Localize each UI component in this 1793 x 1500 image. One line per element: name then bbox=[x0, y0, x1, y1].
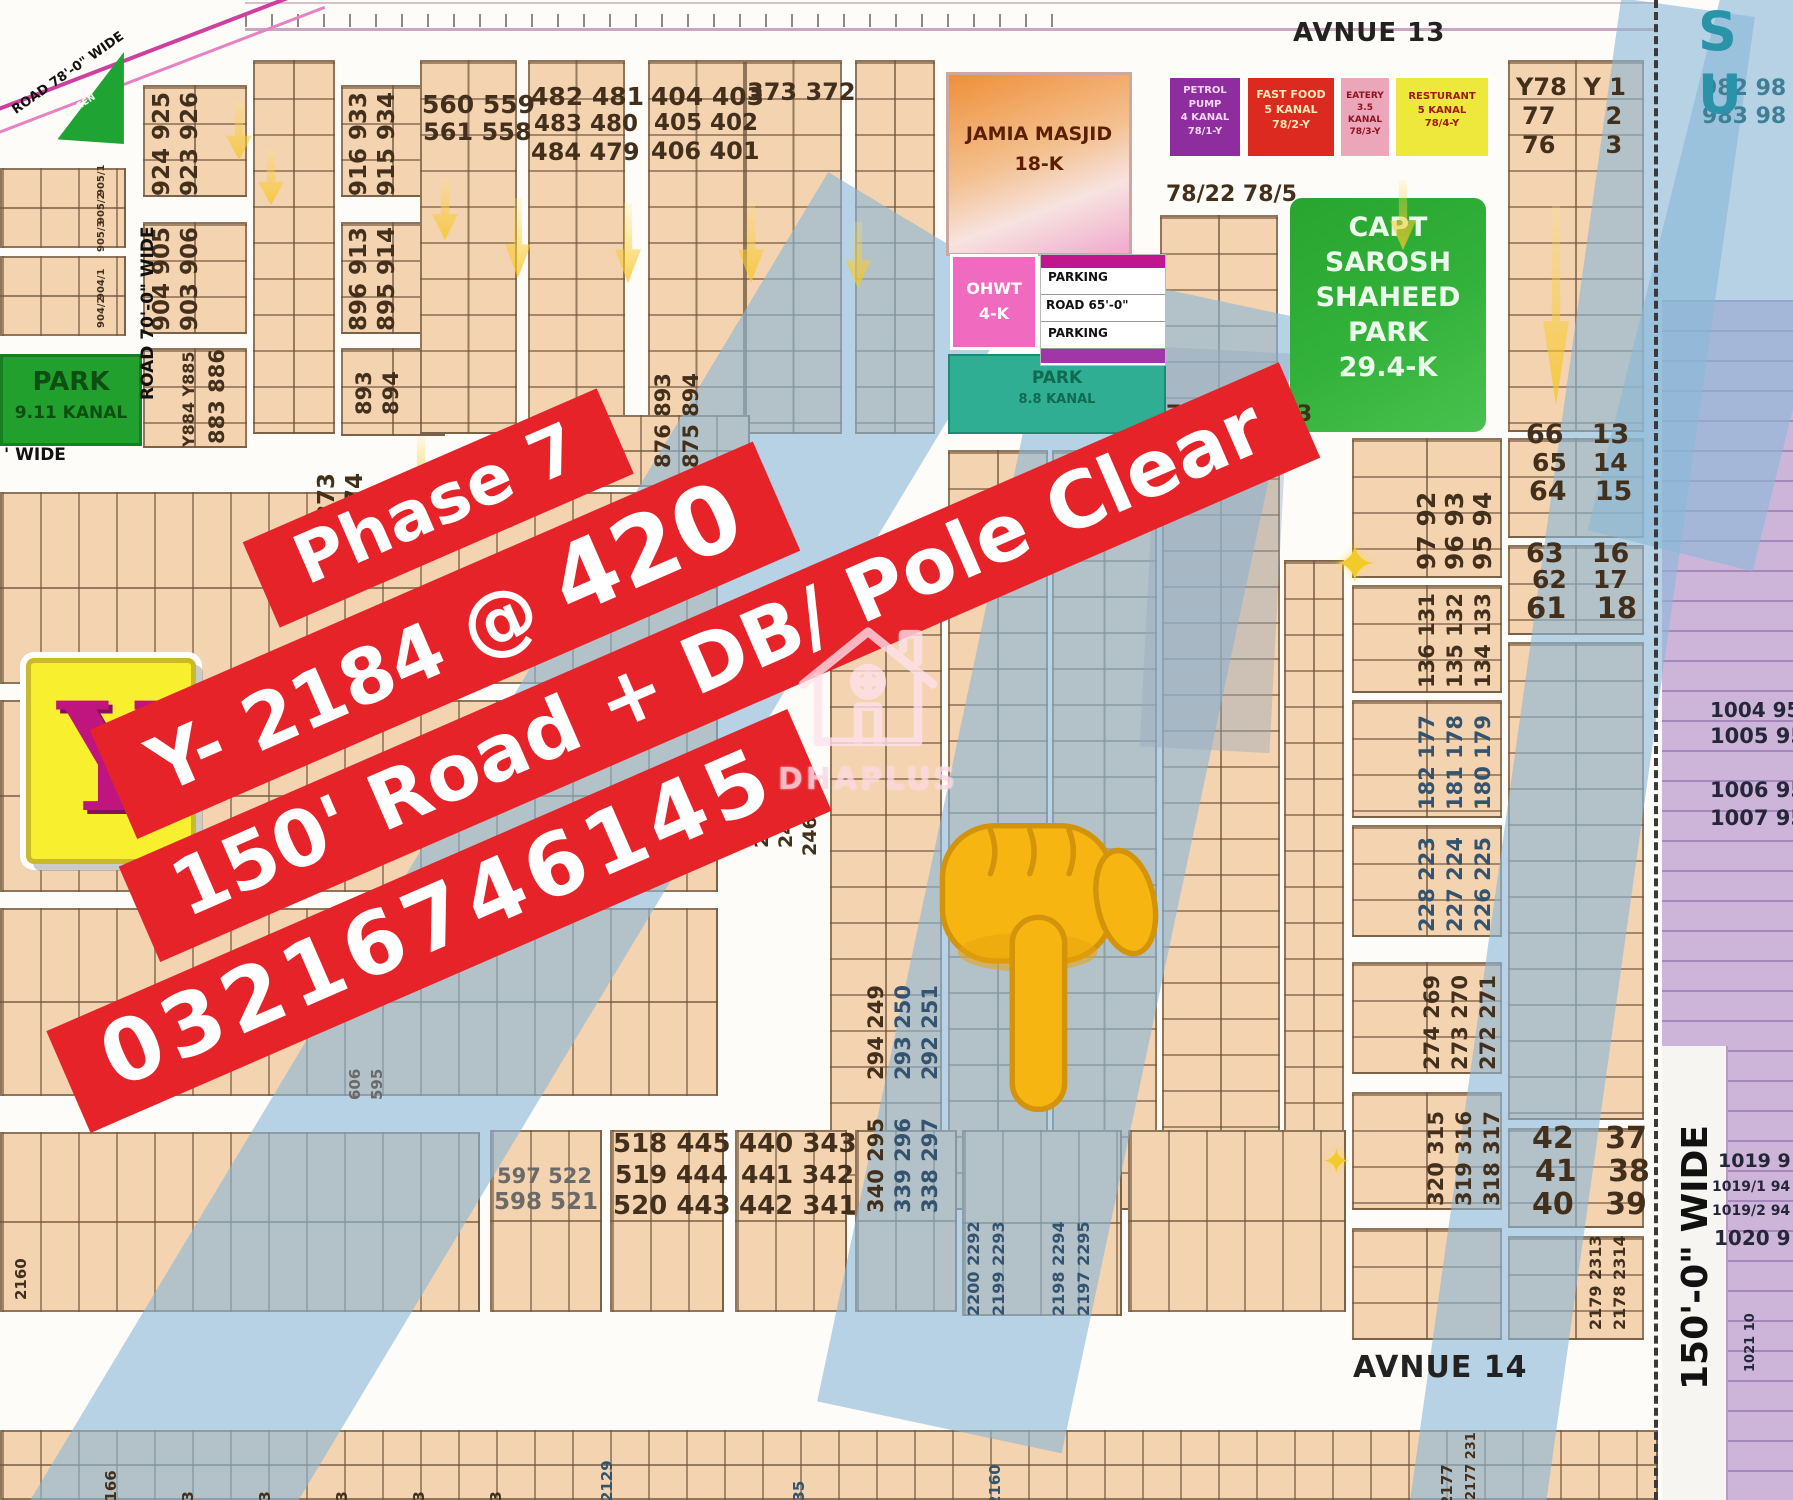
plot-number-label: 96 93 bbox=[1442, 492, 1467, 570]
masjid-title: JAMIA MASJID bbox=[949, 123, 1129, 145]
plot-number-label: 135 132 bbox=[1445, 593, 1466, 688]
capt-line: CAPT bbox=[1290, 210, 1486, 245]
plot-number-label: 482 481 bbox=[531, 84, 644, 109]
plot-number-label: Y884 Y885 bbox=[181, 351, 197, 447]
plot-number-label: 136 131 bbox=[1417, 593, 1438, 688]
plot-number-label: ' WIDE bbox=[4, 447, 66, 464]
plot-number-label: 182 177 bbox=[1417, 715, 1438, 810]
pointing-down-finger-emoji bbox=[925, 800, 1165, 1135]
plot-number-label: 227 224 bbox=[1445, 837, 1466, 932]
plot-grid-block bbox=[253, 60, 335, 434]
plot-number-label: 23 bbox=[335, 1491, 350, 1500]
capt-line: SHAHEED bbox=[1290, 280, 1486, 315]
plot-number-label: 442 341 bbox=[739, 1193, 857, 1219]
fastfood-line: FAST FOOD bbox=[1248, 88, 1334, 103]
plot-number-label: 180 179 bbox=[1473, 715, 1494, 810]
plot-number-label: 2160 bbox=[988, 1464, 1003, 1500]
plot-number-label: 150'-0" WIDE bbox=[1678, 1125, 1714, 1390]
plot-number-label: 519 444 bbox=[615, 1162, 728, 1187]
plot-number-label: ROAD 70'-0" WIDE bbox=[140, 226, 157, 400]
plot-number-label: 520 443 bbox=[613, 1193, 731, 1219]
petrol-line: 4 KANAL bbox=[1170, 111, 1240, 125]
eatery-line: 3.5 KANAL bbox=[1341, 102, 1389, 126]
plot-number-label: 62 17 bbox=[1532, 567, 1628, 592]
top-road-ticks bbox=[245, 14, 1057, 27]
plot-number-label: 339 296 bbox=[893, 1118, 914, 1213]
sector-letters: S U bbox=[1698, 0, 1793, 126]
sector-boundary-dashed-line bbox=[1654, 0, 1658, 1500]
plot-number-label: 226 225 bbox=[1473, 837, 1494, 932]
eatery-line: EATERY bbox=[1341, 90, 1389, 102]
plot-number-label: 1019 9 bbox=[1718, 1152, 1791, 1171]
plot-number-label: 895 914 bbox=[376, 227, 399, 331]
plot-number-label: 23 bbox=[258, 1491, 273, 1500]
plot-number-label: 181 178 bbox=[1445, 715, 1466, 810]
plot-number-label: 1004 95 bbox=[1710, 700, 1793, 720]
plot-number-label: 560 559 bbox=[422, 92, 535, 117]
plot-number-label: 484 479 bbox=[531, 140, 640, 164]
plot-number-label: 1005 95 bbox=[1710, 726, 1793, 747]
plot-number-label: 134 133 bbox=[1473, 593, 1494, 688]
sparkle-icon: ✦ bbox=[1322, 1142, 1351, 1182]
plot-number-label: 440 343 bbox=[739, 1131, 857, 1157]
plot-number-label: 1020 9 bbox=[1714, 1228, 1791, 1248]
plot-number-label: 41 38 bbox=[1535, 1157, 1650, 1187]
top-road-edge bbox=[245, 2, 1655, 4]
plot-number-label: 1007 95 bbox=[1710, 808, 1793, 829]
plot-number-label: 2198 2294 bbox=[1051, 1221, 1067, 1316]
capt-sarosh-shaheed-park: CAPT SAROSH SHAHEED PARK 29.4-K bbox=[1290, 198, 1486, 432]
plot-number-label: 272 271 bbox=[1478, 975, 1499, 1070]
fastfood-line: 78/2-Y bbox=[1248, 118, 1334, 133]
plot-number-label: 597 522 bbox=[497, 1166, 592, 1187]
plot-number-label: 924 925 bbox=[151, 92, 174, 196]
plot-number-label: 441 342 bbox=[741, 1162, 854, 1187]
plot-number-label: 896 913 bbox=[348, 227, 371, 331]
fast-food-block: FAST FOOD 5 KANAL 78/2-Y bbox=[1246, 76, 1336, 158]
fastfood-line: 5 KANAL bbox=[1248, 103, 1334, 118]
plot-number-label: 595 bbox=[370, 1069, 385, 1100]
plot-number-label: 2178 2314 bbox=[1612, 1235, 1628, 1330]
plot-number-label: 63 16 bbox=[1526, 540, 1629, 567]
petrol-line: PETROL bbox=[1170, 84, 1240, 98]
plot-number-label: 23 bbox=[489, 1491, 504, 1500]
plot-number-label: 598 521 bbox=[494, 1191, 598, 1214]
plot-number-label: 1019/2 94 bbox=[1712, 1204, 1790, 1218]
plot-number-label: 2129 bbox=[600, 1460, 615, 1500]
plot-number-label: 23 bbox=[412, 1491, 427, 1500]
plot-number-label: 518 445 bbox=[613, 1131, 731, 1157]
plot-number-label: 97 92 bbox=[1414, 492, 1439, 570]
plot-number-label: 274 269 bbox=[1422, 975, 1443, 1070]
plot-number-label: 905/1 bbox=[97, 165, 107, 196]
plot-grid-block bbox=[0, 256, 126, 336]
plot-number-label: 2179 2313 bbox=[1588, 1235, 1604, 1330]
capt-line: PARK bbox=[1290, 315, 1486, 350]
plot-number-label: 894 bbox=[381, 371, 402, 415]
plot-number-label: 340 295 bbox=[866, 1118, 887, 1213]
plot-number-label: 1006 95 bbox=[1710, 780, 1793, 801]
park-left-size: 9.11 KANAL bbox=[3, 403, 139, 423]
plot-number-label: 273 270 bbox=[1450, 975, 1471, 1070]
plot-number-label: 904/1 bbox=[97, 269, 107, 300]
plot-number-label: 1019/1 94 bbox=[1712, 1180, 1790, 1194]
plot-grid-block bbox=[1284, 560, 1344, 1215]
plot-number-label: 319 316 bbox=[1454, 1111, 1475, 1206]
plot-number-label: 923 926 bbox=[179, 92, 202, 196]
plot-number-label: 606 bbox=[348, 1069, 363, 1100]
plot-number-label: 66 13 bbox=[1526, 421, 1629, 448]
plot-number-label: 320 315 bbox=[1426, 1111, 1447, 1206]
plot-number-label: 893 bbox=[354, 371, 375, 415]
plot-number-label: 904/2 bbox=[97, 297, 107, 328]
restaurant-block: RESTURANT 5 KANAL 78/4-Y bbox=[1394, 76, 1490, 158]
restaurant-line: 78/4-Y bbox=[1396, 117, 1488, 131]
plot-grid-block bbox=[490, 1130, 602, 1312]
plot-number-label: 905/2 bbox=[97, 193, 107, 224]
plot-grid-block bbox=[0, 168, 126, 248]
plot-number-label: 1021 10 bbox=[1744, 1313, 1757, 1372]
restaurant-line: RESTURANT bbox=[1396, 90, 1488, 104]
plot-number-label: 2200 2292 bbox=[966, 1221, 982, 1316]
plot-number-label: 23 bbox=[181, 1491, 196, 1500]
plot-number-label: 2199 2293 bbox=[991, 1221, 1007, 1316]
plot-number-label: 405 402 bbox=[654, 112, 758, 135]
plot-number-label: 406 401 bbox=[651, 139, 760, 163]
plot-number-label: 2177 bbox=[1440, 1464, 1455, 1500]
plot-number-label: Y78 Y 1 bbox=[1516, 75, 1626, 99]
eatery-block: EATERY 3.5 KANAL 78/3-Y bbox=[1339, 76, 1391, 158]
park-left-title: PARK bbox=[3, 367, 139, 397]
plot-number-label: 915 934 bbox=[376, 92, 399, 196]
watermark-text: DHAPLUS bbox=[768, 762, 968, 797]
plot-number-label: 373 372 bbox=[747, 80, 856, 104]
plot-number-label: 2197 2295 bbox=[1076, 1221, 1092, 1316]
plot-number-label: 65 14 bbox=[1532, 450, 1628, 475]
plot-number-label: 61 18 bbox=[1526, 594, 1637, 623]
petrol-line: PUMP bbox=[1170, 98, 1240, 112]
plot-number-label: 2177 231 bbox=[1465, 1432, 1478, 1500]
plot-grid-block bbox=[1128, 1130, 1346, 1312]
plot-number-label: 77 2 bbox=[1522, 104, 1622, 128]
plot-number-label: 235 bbox=[792, 1481, 807, 1500]
restaurant-line: 5 KANAL bbox=[1396, 104, 1488, 118]
plot-number-label: 916 933 bbox=[348, 92, 371, 196]
capt-line: 29.4-K bbox=[1290, 350, 1486, 385]
plot-number-label: 905/3 bbox=[97, 221, 107, 252]
capt-line: SAROSH bbox=[1290, 245, 1486, 280]
plot-number-label: 294 249 bbox=[866, 985, 887, 1080]
dha-house-icon bbox=[793, 618, 943, 758]
plot-number-label: 903 906 bbox=[179, 227, 202, 331]
plot-number-label: 64 15 bbox=[1529, 478, 1632, 505]
park-9-11-kanal: PARK 9.11 KANAL bbox=[0, 354, 142, 446]
plot-number-label: 95 94 bbox=[1470, 492, 1495, 570]
plot-number-label: 483 480 bbox=[534, 113, 638, 136]
plot-number-label: 318 317 bbox=[1482, 1111, 1503, 1206]
plot-number-label: 42 37 bbox=[1532, 1124, 1647, 1154]
plot-map: PARK 9.11 KANAL CAPT SAROSH SHAHEED PARK… bbox=[0, 0, 1793, 1500]
plot-number-label: 40 39 bbox=[1532, 1190, 1647, 1220]
plot-number-label: 2166 bbox=[104, 1470, 119, 1500]
plot-number-label: 293 250 bbox=[893, 985, 914, 1080]
plot-number-label: 76 3 bbox=[1522, 133, 1622, 157]
plot-number-label: 228 223 bbox=[1417, 837, 1438, 932]
eatery-line: 78/3-Y bbox=[1341, 126, 1389, 138]
avenue-14-label: AVNUE 14 bbox=[1353, 1350, 1528, 1385]
plot-number-label: 883 886 bbox=[207, 349, 228, 444]
plot-number-label: 561 558 bbox=[423, 120, 532, 144]
avenue-13-label: AVNUE 13 bbox=[1293, 18, 1445, 48]
plot-number-label: 2160 bbox=[14, 1258, 29, 1300]
